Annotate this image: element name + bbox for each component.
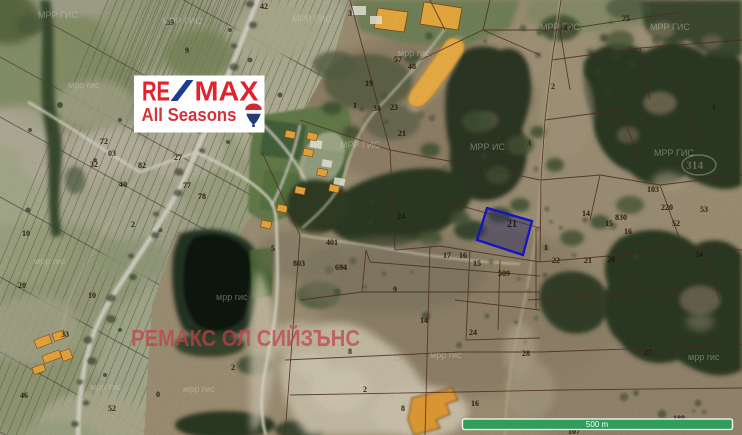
svg-text:мрр гис: мрр гис (90, 382, 122, 392)
svg-text:MAX: MAX (195, 76, 259, 107)
svg-text:МРР ГИС: МРР ГИС (340, 140, 380, 150)
svg-text:МРР ИС: МРР ИС (470, 142, 505, 152)
svg-text:мрр гис: мрр гис (183, 384, 215, 394)
svg-text:МРР ГИС: МРР ГИС (650, 22, 690, 32)
svg-text:мрр гис: мрр гис (34, 256, 66, 266)
svg-text:МРР ГИС: МРР ГИС (540, 22, 580, 32)
svg-text:мрр гис: мрр гис (398, 48, 430, 58)
svg-text:МРР ГИС: МРР ГИС (292, 14, 332, 24)
svg-text:RE: RE (142, 76, 170, 107)
svg-text:мрр гис: мрр гис (216, 292, 248, 302)
svg-text:мрр гис: мрр гис (430, 350, 462, 360)
svg-text:МРР ГИС: МРР ГИС (162, 16, 202, 26)
svg-text:РЕМАКС ОЛ СИЙЗЪНС: РЕМАКС ОЛ СИЙЗЪНС (131, 324, 360, 351)
svg-text:мрр гис: мрр гис (688, 352, 720, 362)
svg-text:мрр гис: мрр гис (68, 80, 100, 90)
svg-text:МРР ГИС: МРР ГИС (654, 148, 694, 158)
svg-text:All Seasons: All Seasons (142, 104, 237, 125)
svg-text:МРР ГИС: МРР ГИС (38, 10, 78, 20)
svg-text:500 m: 500 m (586, 420, 609, 429)
